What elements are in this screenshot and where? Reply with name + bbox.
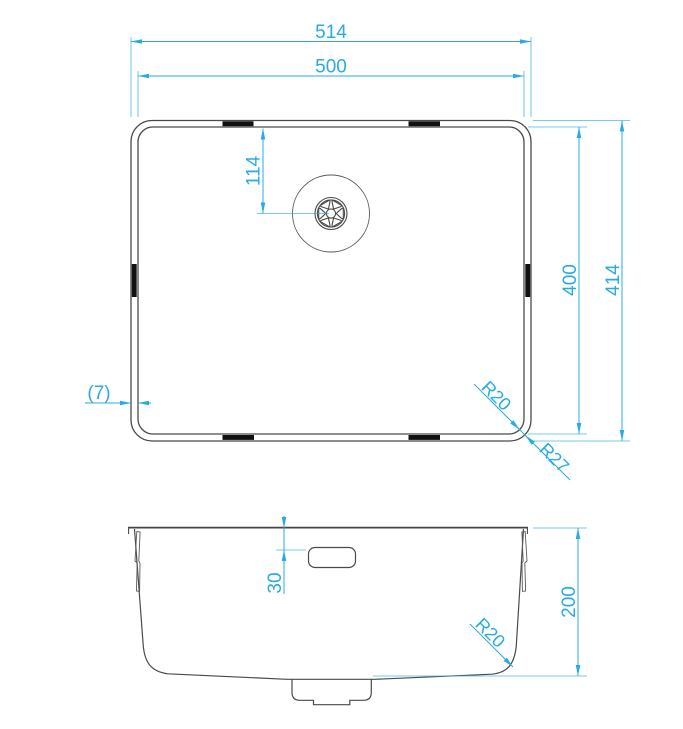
dim-7-label: (7) — [87, 383, 110, 404]
front-view — [128, 527, 528, 705]
drain-fitting — [292, 679, 371, 704]
arrow — [524, 434, 535, 445]
arrow — [577, 127, 582, 138]
arrow — [261, 203, 266, 214]
arrow — [138, 74, 149, 79]
dim-inner-width: 500 — [138, 57, 524, 118]
dim-r27-label: R27 — [535, 439, 572, 476]
sink-outer-outline — [131, 121, 531, 442]
dim-drain-offset: 114 — [244, 129, 330, 214]
dim-r20-front-label: R20 — [471, 614, 508, 651]
dim-200-label: 200 — [559, 586, 580, 618]
dim-30-label: 30 — [265, 572, 286, 593]
dim-414-label: 414 — [603, 264, 624, 296]
dim-bowl-depth: 200 — [373, 528, 587, 676]
dim-bottom-corner-radius: R20 — [470, 614, 515, 669]
overflow-hole — [309, 548, 356, 568]
arrow — [131, 39, 142, 44]
arrow — [510, 420, 521, 431]
dim-rim-width: (7) — [85, 383, 151, 405]
mounting-clip-left — [132, 264, 137, 297]
mounting-clip-bottom-right — [409, 435, 441, 440]
dim-inner-depth: 400 — [528, 127, 587, 434]
top-view — [131, 121, 531, 442]
dim-r20-label: R20 — [477, 377, 514, 414]
dim-400-label: 400 — [560, 264, 581, 296]
sink-inner-outline — [138, 127, 524, 434]
arrow — [120, 401, 131, 406]
mounting-clip-bottom-left — [223, 435, 255, 440]
arrow — [282, 517, 287, 528]
arrow — [620, 430, 625, 441]
arrow — [576, 665, 581, 676]
mounting-clip-front-right — [522, 532, 527, 592]
arrow — [138, 401, 149, 406]
dim-outer-depth: 414 — [533, 121, 630, 442]
bowl-outline — [135, 529, 524, 679]
dim-114-label: 114 — [244, 155, 265, 186]
dim-514-label: 514 — [315, 22, 347, 43]
mounting-clip-top-right — [409, 121, 441, 126]
arrow — [520, 39, 531, 44]
dim-500-label: 500 — [315, 57, 347, 78]
mounting-clip-right — [525, 264, 530, 297]
arrow — [282, 550, 287, 561]
mounting-clip-top-left — [223, 121, 254, 126]
arrow — [620, 121, 625, 132]
sink-technical-drawing: 514 500 114 400 414 (7) — [0, 0, 683, 729]
arrow — [577, 423, 582, 434]
arrow — [261, 129, 266, 140]
arrow — [576, 528, 581, 539]
arrow — [513, 74, 524, 79]
